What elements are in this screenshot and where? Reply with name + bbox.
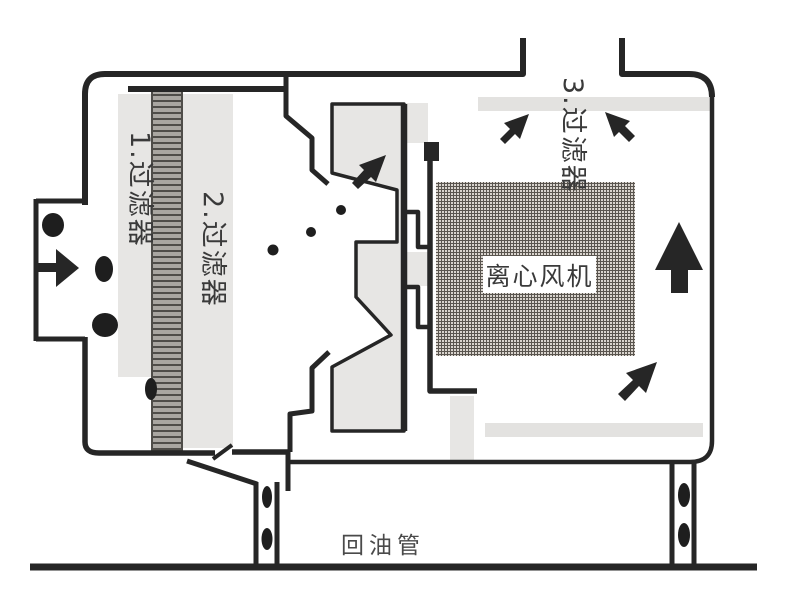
filter3-label: 3.过滤器 bbox=[559, 77, 586, 194]
riser-up-arrow-head-icon bbox=[655, 222, 703, 270]
inlet-right-arrow-icon bbox=[34, 263, 58, 272]
filter1-label: 1.过滤器 bbox=[126, 131, 153, 248]
upper-baffle-wall bbox=[286, 77, 328, 184]
oil-droplet bbox=[678, 523, 690, 547]
oil-droplet bbox=[145, 378, 157, 400]
duct-up-right-arrow-icon bbox=[618, 362, 657, 401]
filter1-media bbox=[152, 88, 182, 450]
linework-svg bbox=[0, 0, 800, 600]
baffle-plate bbox=[332, 104, 404, 431]
oil-droplet bbox=[92, 313, 118, 337]
oil-droplet bbox=[95, 256, 113, 282]
filter2-label: 2.过滤器 bbox=[199, 191, 226, 308]
filter3-bar bbox=[478, 97, 711, 111]
bracket-clip-upper bbox=[404, 212, 431, 247]
drain-tray-bar bbox=[485, 423, 703, 437]
oil-return-label: 回油管 bbox=[341, 533, 425, 561]
fan-label: 离心风机 bbox=[483, 256, 596, 293]
riser-up-arrow-stem-icon bbox=[671, 268, 688, 293]
top-wall-right bbox=[622, 38, 712, 97]
oil-droplet bbox=[262, 528, 273, 550]
fan-support-column bbox=[450, 396, 474, 460]
diagram-canvas: 1.过滤器 2.过滤器 3.过滤器 离心风机 回油管 bbox=[0, 0, 800, 600]
oil-droplet bbox=[268, 245, 279, 256]
bracket-cap bbox=[424, 142, 439, 161]
bracket-clip-lower bbox=[404, 287, 431, 327]
drain-funnel-chute bbox=[187, 461, 257, 484]
mount-spacer-top bbox=[406, 103, 428, 143]
exhaust-up-right-arrow-icon bbox=[500, 114, 529, 144]
oil-droplet bbox=[306, 227, 316, 237]
lower-baffle-wall bbox=[290, 352, 329, 452]
exhaust-up-left-arrow-icon bbox=[605, 112, 635, 142]
oil-droplet bbox=[678, 483, 690, 507]
inlet-right-arrow-head-icon bbox=[56, 249, 79, 287]
oil-droplet bbox=[262, 486, 272, 508]
mount-spacer-mid bbox=[406, 252, 428, 286]
oil-droplet bbox=[42, 213, 64, 237]
oil-droplet bbox=[336, 205, 346, 215]
